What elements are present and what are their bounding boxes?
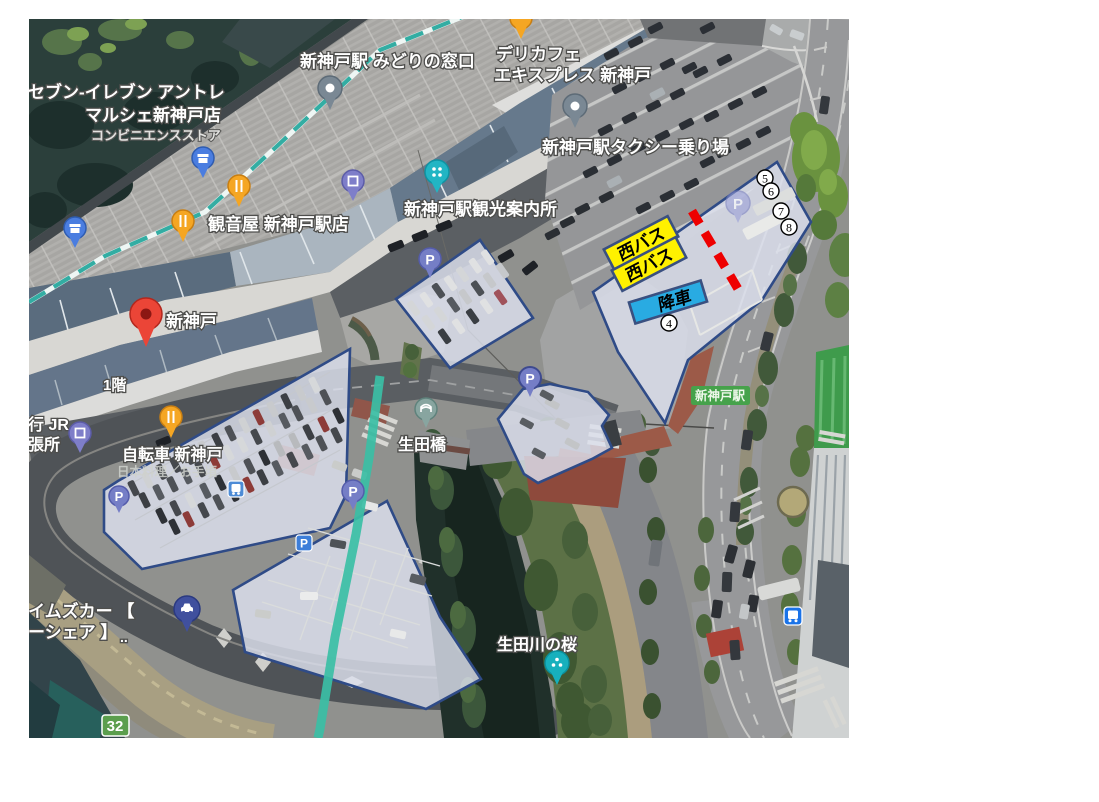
svg-text:..: ..	[120, 629, 128, 645]
svg-text:生田川の桜: 生田川の桜	[497, 635, 577, 654]
svg-text:デリカフェ: デリカフェ	[496, 44, 581, 64]
svg-text:1階: 1階	[103, 376, 126, 394]
svg-text:32: 32	[107, 718, 124, 735]
svg-text:8: 8	[786, 221, 792, 235]
svg-text:P: P	[115, 489, 124, 504]
svg-text:日本料理／お手頃: 日本料理／お手頃	[117, 464, 218, 479]
svg-text:P: P	[300, 537, 308, 551]
svg-text:新神戸駅観光案内所: 新神戸駅観光案内所	[404, 199, 557, 219]
svg-text:新神戸駅: 新神戸駅	[695, 388, 746, 403]
svg-text:観音屋 新神戸駅店: 観音屋 新神戸駅店	[208, 214, 349, 234]
svg-text:コンビニエンスストア: コンビニエンスストア	[91, 128, 221, 143]
svg-text:P: P	[525, 371, 534, 387]
svg-text:エキスプレス 新神戸: エキスプレス 新神戸	[494, 65, 651, 85]
svg-text:P: P	[425, 252, 434, 268]
svg-text:張所: 張所	[28, 436, 60, 454]
svg-text:7: 7	[778, 205, 784, 219]
svg-text:4: 4	[666, 317, 672, 331]
svg-text:マルシェ新神戸店: マルシェ新神戸店	[85, 105, 221, 125]
svg-text:新神戸駅タクシー乗り場: 新神戸駅タクシー乗り場	[542, 137, 729, 157]
svg-text:イムズカー 【: イムズカー 【	[28, 601, 134, 621]
svg-text:P: P	[733, 196, 743, 213]
svg-text:生田橋: 生田橋	[398, 435, 447, 454]
svg-text:6: 6	[768, 185, 774, 199]
svg-text:自転車 新神戸: 自転車 新神戸	[122, 445, 222, 464]
svg-text:P: P	[348, 484, 357, 500]
svg-text:新神戸駅 みどりの窓口: 新神戸駅 みどりの窓口	[300, 51, 475, 71]
svg-text:新神戸: 新神戸	[166, 311, 217, 331]
svg-text:セブン-イレブン アントレ: セブン-イレブン アントレ	[28, 82, 225, 102]
svg-text:ーシェア 】: ーシェア 】	[28, 622, 117, 642]
svg-text:行 JR: 行 JR	[27, 415, 69, 434]
